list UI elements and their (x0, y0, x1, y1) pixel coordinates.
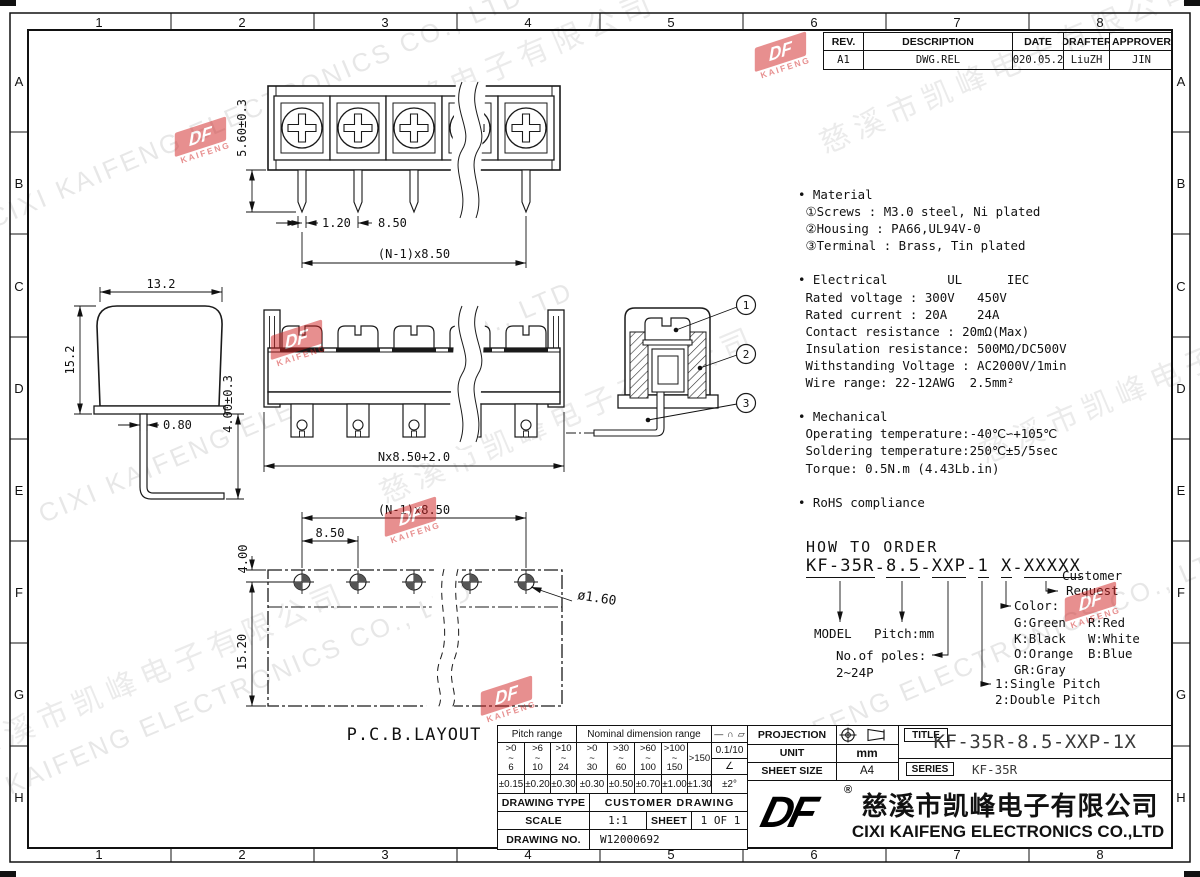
arc-symbol: ∩ (727, 729, 733, 739)
spec-line: Torque: 0.5N.m (4.43Lb.in) (798, 460, 1067, 477)
tol-value: ±1.30 (688, 775, 712, 794)
registered-mark: ® (844, 784, 852, 796)
spec-line: ①Screws : M3.0 steel, Ni plated (798, 203, 1067, 220)
spec-line: Withstanding Voltage : AC2000V/1min (798, 357, 1067, 374)
tol-range: >100~150 (662, 743, 688, 775)
grid-col-label: 6 (810, 847, 817, 862)
line-symbol: — (714, 729, 723, 739)
color-option: W:White (1088, 632, 1140, 648)
tol-header-pitch: Pitch range (498, 726, 577, 743)
company-name-en: CIXI KAIFENG ELECTRONICS CO.,LTD (848, 822, 1168, 842)
tol-range: >0~6 (498, 743, 525, 775)
projection-symbol-icon (836, 726, 898, 744)
spec-line (798, 254, 1067, 271)
spec-line: Insulation resistance: 500MΩ/DC500V (798, 340, 1067, 357)
grid-row-label: A (1177, 74, 1186, 89)
grid-row-label: D (1176, 381, 1185, 396)
order-label-model: MODEL (814, 626, 852, 641)
view-section: 1 2 3 (566, 296, 756, 437)
rev-cell: LiuZH (1064, 51, 1110, 69)
grid-row-label: E (1177, 483, 1186, 498)
grid-col-label: 1 (95, 847, 102, 862)
tol-header-symbols: — ∩ ▱ (712, 726, 747, 743)
grid-col-label: 4 (524, 15, 531, 30)
order-label-poles-range: 2~24P (836, 665, 874, 680)
kaifeng-logo: DF (756, 788, 819, 838)
dim-top-pitch: 8.50 (378, 216, 407, 230)
rev-header: APPROVER (1110, 33, 1173, 51)
spec-line (798, 391, 1067, 408)
grid-col-label: 8 (1096, 15, 1103, 30)
revision-table: REV. DESCRIPTION DATE DRAFTER APPROVER A… (823, 32, 1172, 70)
grid-row-label: G (14, 687, 24, 702)
order-sep: - (1012, 558, 1023, 578)
order-sep: - (875, 558, 886, 578)
drawing-no-value: W12000692 (590, 830, 749, 849)
dim-side-foot: 4.00±0.3 (221, 375, 235, 433)
grid-col-label: 2 (238, 847, 245, 862)
spec-line: Contact resistance : 20mΩ(Max) (798, 323, 1067, 340)
how-to-order-title: HOW TO ORDER (806, 538, 938, 556)
grid-row-label: E (15, 483, 24, 498)
tol-flatness: 0.1/10 (712, 743, 747, 759)
order-token-color: X (1001, 556, 1012, 578)
color-option: B:Blue (1088, 647, 1132, 663)
spec-line (798, 477, 1067, 494)
grid-col-label: 5 (667, 15, 674, 30)
tol-range: >60~100 (635, 743, 662, 775)
projection-label: PROJECTION (748, 726, 836, 744)
grid-row-label: H (1176, 790, 1185, 805)
tol-range: >6~10 (525, 743, 551, 775)
tol-range: >30~60 (608, 743, 635, 775)
dim-pcb-offset: 4.00 (236, 545, 250, 574)
drawing-title: KF-35R-8.5-XXP-1X (898, 728, 1172, 756)
tol-value: ±0.50 (608, 775, 635, 794)
order-label-color: Color: (1014, 598, 1059, 613)
spec-line: • RoHS compliance (798, 494, 1067, 511)
view-pcb: (N-1)x8.50 8.50 4.00 15.20 ø1.60 P.C.B.L… (235, 503, 617, 745)
tol-range: >0~30 (577, 743, 608, 775)
drawing-sheet: CIXI KAIFENG ELECTRONICS CO., LTD 慈溪市凯峰电… (0, 0, 1200, 877)
tol-value: ±1.00 (662, 775, 688, 794)
series-value: KF-35R (972, 762, 1017, 777)
grid-col-label: 3 (381, 15, 388, 30)
spec-line: • Material (798, 186, 1067, 203)
callout-3: 3 (743, 397, 750, 410)
tol-value: ±0.30 (577, 775, 608, 794)
order-token-model: KF-35R (806, 556, 875, 578)
rev-cell: DWG.REL (864, 51, 1013, 69)
view-top: 5.60±0.3 1.20 8.50 (N-1)x8.50 (235, 82, 560, 268)
dim-top-height: 5.60±0.3 (235, 99, 249, 157)
order-sep: - (920, 558, 931, 578)
spec-line: • Electrical UL IEC (798, 271, 1067, 288)
series-label: SERIES (906, 762, 954, 776)
order-code: KF-35R - 8.5 - XXP - 1 X - XXXXX (806, 556, 1081, 578)
tol-range: >10~24 (551, 743, 577, 775)
grid-row-label: F (1177, 585, 1185, 600)
tol-header-nominal: Nominal dimension range (577, 726, 712, 743)
title-block: PROJECTION UNIT mm SHEET SIZE A4 TITLE K… (748, 725, 1172, 848)
order-label-pitch: Pitch:mm (874, 626, 934, 641)
order-sep: - (966, 558, 977, 578)
grid-row-label: B (1177, 176, 1186, 191)
scale-value: 1:1 (590, 812, 647, 830)
tol-range-last: >150 (688, 743, 712, 775)
pcb-layout-label: P.C.B.LAYOUT (347, 725, 482, 745)
order-token-pitch-type: 1 (978, 556, 989, 578)
spec-line: Rated voltage : 300V 450V (798, 289, 1067, 306)
dim-side-height: 15.2 (63, 346, 77, 375)
rev-header: DATE (1013, 33, 1064, 51)
spec-line: Wire range: 22-12AWG 2.5mm² (798, 374, 1067, 391)
dim-pcb-height: 15.20 (235, 634, 249, 670)
spec-line: ②Housing : PA66,UL94V-0 (798, 220, 1067, 237)
tol-value: ±0.15 (498, 775, 525, 794)
grid-col-label: 3 (381, 847, 388, 862)
scale-label: SCALE (498, 812, 590, 830)
grid-row-label: G (1176, 687, 1186, 702)
callout-2: 2 (743, 348, 750, 361)
grid-col-label: 8 (1096, 847, 1103, 862)
grid-row-label: F (15, 585, 23, 600)
unit-value: mm (836, 744, 898, 762)
grid-col-label: 2 (238, 15, 245, 30)
square-symbol: ▱ (738, 729, 745, 740)
dim-top-pin-width: 1.20 (322, 216, 351, 230)
unit-label: UNIT (748, 744, 836, 762)
rev-cell: A1 (824, 51, 864, 69)
sheet-size-value: A4 (836, 762, 898, 780)
sheet-size-label: SHEET SIZE (748, 762, 836, 780)
grid-row-label: C (1176, 279, 1185, 294)
order-label-double-pitch: 2:Double Pitch (995, 692, 1100, 707)
rev-header: REV. (824, 33, 864, 51)
rev-header: DESCRIPTION (864, 33, 1013, 51)
drawing-type-value: CUSTOMER DRAWING (590, 794, 749, 812)
tol-value-angle: ±2° (712, 775, 747, 794)
dim-front-span: Nx8.50+2.0 (378, 450, 450, 464)
color-option: O:Orange (1014, 647, 1088, 663)
order-label-customer: Customer (1062, 568, 1122, 583)
spec-line: Soldering temperature:250℃±5/5sec (798, 442, 1067, 459)
grid-col-label: 6 (810, 15, 817, 30)
order-label-single-pitch: 1:Single Pitch (995, 676, 1100, 691)
dim-side-pin: 0.80 (163, 418, 192, 432)
tol-angle-symbol: ∠ (712, 759, 747, 775)
tol-value: ±0.70 (635, 775, 662, 794)
tol-value: ±0.30 (551, 775, 577, 794)
dim-top-span: (N-1)x8.50 (378, 247, 450, 261)
grid-col-label: 7 (953, 847, 960, 862)
grid-row-label: A (15, 74, 24, 89)
order-token-poles: XXP (932, 556, 966, 578)
drawing-type-label: DRAWING TYPE (498, 794, 590, 812)
grid-row-label: H (14, 790, 23, 805)
rev-header: DRAFTER (1064, 33, 1110, 51)
spec-line: Operating temperature:-40℃∽+105℃ (798, 425, 1067, 442)
spec-line: • Mechanical (798, 408, 1067, 425)
drawing-no-label: DRAWING NO. (498, 830, 590, 849)
grid-col-label: 1 (95, 15, 102, 30)
order-label-poles: No.of poles: (836, 648, 926, 663)
dim-side-width: 13.2 (147, 277, 176, 291)
tolerance-table: Pitch range Nominal dimension range — ∩ … (497, 725, 748, 794)
drawing-info-table: DRAWING TYPE CUSTOMER DRAWING SCALE 1:1 … (497, 793, 748, 850)
order-token-pitch: 8.5 (886, 556, 920, 578)
grid-row-label: D (14, 381, 23, 396)
spec-line: Rated current : 20A 24A (798, 306, 1067, 323)
callout-1: 1 (743, 299, 750, 312)
rev-cell: JIN (1110, 51, 1173, 69)
sheet-value: 1 OF 1 (692, 812, 749, 830)
rev-cell: 2020.05.21 (1013, 51, 1064, 69)
spec-line: ③Terminal : Brass, Tin plated (798, 237, 1067, 254)
company-name-cn: 慈溪市凯峰电子有限公司 (852, 786, 1168, 823)
spec-notes: • Material ①Screws : M3.0 steel, Ni plat… (798, 186, 1067, 511)
sheet-label: SHEET (647, 812, 692, 830)
view-side: 13.2 15.2 0.80 4.00±0.3 (63, 277, 244, 499)
grid-row-label: B (15, 176, 24, 191)
grid-row-label: C (14, 279, 23, 294)
color-option: K:Black (1014, 632, 1088, 648)
grid-col-label: 7 (953, 15, 960, 30)
dim-pcb-pitch: 8.50 (316, 526, 345, 540)
tol-value: ±0.20 (525, 775, 551, 794)
dim-pcb-hole: ø1.60 (576, 588, 617, 609)
